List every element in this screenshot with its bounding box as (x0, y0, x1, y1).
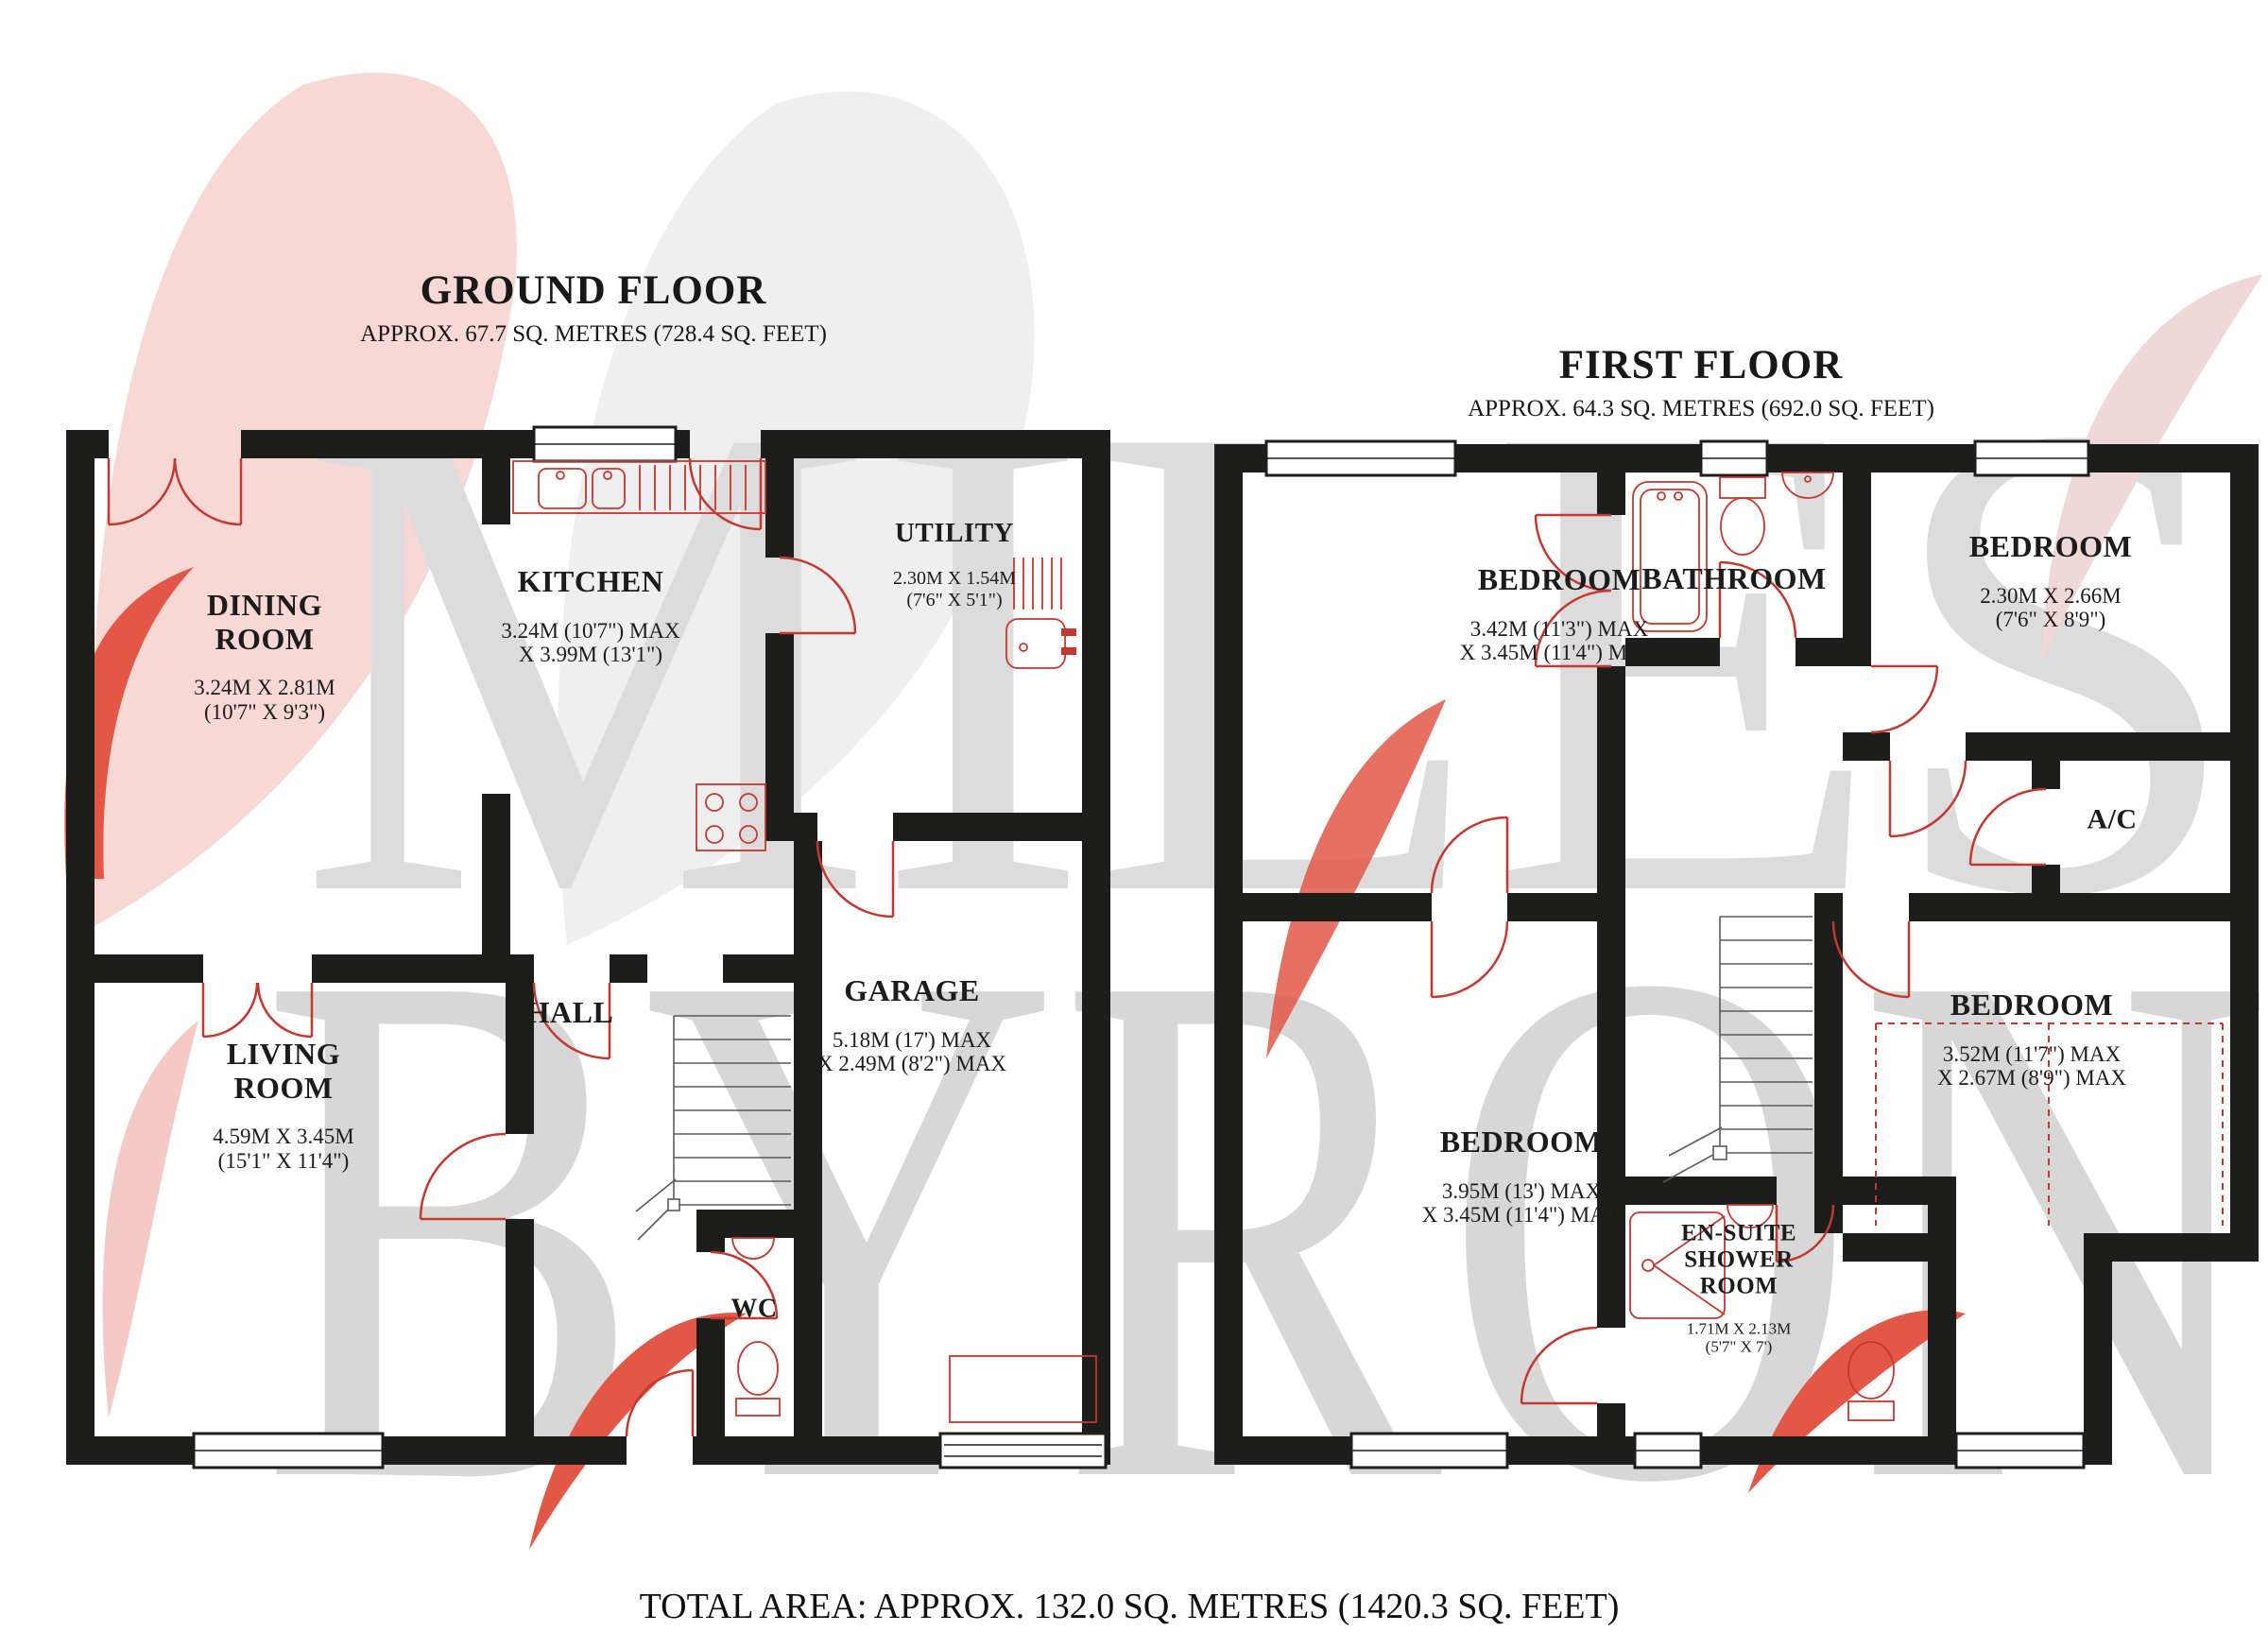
room-label-bedroom4: BEDROOM 3.95M (13') MAX X 3.45M (11'4") … (1422, 1108, 1622, 1245)
dining-room-dims: 3.24M X 2.81M (10'7" X 9'3") (194, 677, 335, 726)
dining-room-name: DINING ROOM (194, 589, 335, 657)
bedroom3-name: BEDROOM (1937, 988, 2126, 1022)
bedroom4-door (1432, 921, 1507, 997)
wc-name: WC (730, 1294, 777, 1323)
kitchen-hob (696, 784, 765, 850)
room-label-bedroom2: BEDROOM 2.30M X 2.66M (7'6" X 8'9") (1969, 513, 2132, 649)
kitchen-dims: 3.24M (10'7") MAX X 3.99M (13'1") (501, 619, 679, 668)
room-label-bathroom: BATHROOM (1641, 545, 1826, 613)
ground-stairs (636, 1016, 791, 1240)
first-floor-plan: BEDROOM 3.42M (11'3") MAX X 3.45M (11'4"… (1210, 430, 2268, 1479)
ground-floor-subtitle: APPROX. 67.7 SQ. METRES (728.4 SQ. FEET) (360, 321, 827, 348)
garage-name: GARAGE (817, 974, 1006, 1008)
first-floor-subtitle: APPROX. 64.3 SQ. METRES (692.0 SQ. FEET) (1468, 396, 1934, 422)
bedroom1-window (1266, 441, 1455, 475)
dining-french-doors (109, 458, 241, 524)
wc-basin (732, 1238, 774, 1259)
ac-cupboard-door (1970, 789, 2046, 865)
utility-name: UTILITY (893, 518, 1016, 548)
bedroom2-name: BEDROOM (1969, 530, 2132, 564)
ground-floor-plan: DINING ROOM 3.24M X 2.81M (10'7" X 9'3")… (61, 416, 1120, 1479)
bedroom2-dims: 2.30M X 2.66M (7'6" X 8'9") (1969, 584, 2132, 633)
wc-toilet (736, 1342, 780, 1416)
ensuite-toilet (1848, 1342, 1894, 1420)
bedroom1-dims: 3.42M (11'3") MAX X 3.45M (11'4") MAX (1460, 617, 1659, 666)
hall-name: HALL (526, 996, 614, 1030)
bedroom4-name: BEDROOM (1422, 1125, 1622, 1159)
landing-door (1890, 761, 1966, 836)
bedroom1-name: BEDROOM (1460, 563, 1659, 597)
room-label-ac: A/C (2087, 786, 2137, 851)
ensuite-window (1635, 1434, 1701, 1468)
room-label-wc: WC (730, 1277, 777, 1340)
room-label-bedroom3: BEDROOM 3.52M (11'7") MAX X 2.67M (8'9")… (1937, 971, 2126, 1108)
room-label-ensuite: EN-SUITE SHOWER ROOM 1.71M X 2.13M (5'7"… (1681, 1204, 1796, 1373)
ensuite-dims: 1.71M X 2.13M (5'7" X 7') (1681, 1319, 1796, 1355)
garage-dims: 5.18M (17') MAX X 2.49M (8'2") MAX (817, 1028, 1006, 1077)
room-label-hall: HALL (526, 979, 614, 1047)
first-stairs (1663, 917, 1813, 1182)
bedroom4-ensuite-door (1521, 1328, 1597, 1403)
garage-door (940, 1434, 1106, 1468)
bedroom2-window (1975, 441, 2088, 475)
bathroom-window (1701, 441, 1767, 475)
bathroom-basin (1782, 472, 1833, 498)
ground-floor-title: GROUND FLOOR (421, 267, 767, 314)
utility-dims: 2.30M X 1.54M (7'6" X 5'1") (893, 568, 1016, 610)
bedroom4-window (1351, 1434, 1507, 1468)
bedroom2-door (1871, 666, 1937, 732)
bedroom3-door (1833, 921, 1909, 997)
bedroom3-bay-window (1956, 1434, 2084, 1468)
room-label-dining: DINING ROOM 3.24M X 2.81M (10'7" X 9'3") (194, 572, 335, 742)
garage-door-swing (950, 1356, 1096, 1422)
ensuite-name: EN-SUITE SHOWER ROOM (1681, 1221, 1796, 1300)
room-label-bedroom1: BEDROOM 3.42M (11'3") MAX X 3.45M (11'4"… (1460, 546, 1659, 682)
kitchen-name: KITCHEN (501, 565, 679, 599)
room-label-kitchen: KITCHEN 3.24M (10'7") MAX X 3.99M (13'1"… (501, 548, 679, 684)
front-door (627, 1370, 693, 1436)
garage-side-door (817, 841, 893, 917)
bathroom-toilet (1720, 477, 1765, 555)
room-label-utility: UTILITY 2.30M X 1.54M (7'6" X 5'1") (893, 501, 1016, 627)
bedroom3-dims: 3.52M (11'7") MAX X 2.67M (8'9") MAX (1937, 1042, 2126, 1091)
bedroom4-dims: 3.95M (13') MAX X 3.45M (11'4") MAX (1422, 1179, 1622, 1228)
room-label-garage: GARAGE 5.18M (17') MAX X 2.49M (8'2") MA… (817, 957, 1006, 1093)
ac-name: A/C (2087, 803, 2137, 835)
living-room-name: LIVING ROOM (213, 1038, 354, 1106)
living-room-dims: 4.59M X 3.45M (15'1" X 11'4") (213, 1125, 354, 1175)
kitchen-sink (539, 469, 625, 508)
total-area-text: TOTAL AREA: APPROX. 132.0 SQ. METRES (14… (640, 1586, 1620, 1627)
utility-radiator (1014, 558, 1061, 610)
bedroom1-door (1432, 817, 1507, 893)
utility-door (780, 558, 855, 633)
first-floor-title: FIRST FLOOR (1559, 342, 1844, 388)
living-room-window (194, 1434, 383, 1468)
room-label-living: LIVING ROOM 4.59M X 3.45M (15'1" X 11'4"… (213, 1021, 354, 1191)
kitchen-window (534, 427, 676, 461)
hall-living-door (421, 1134, 506, 1219)
floorplan-page: { "page": {"background": "#ffffff"}, "wa… (0, 0, 2268, 1649)
bathroom-name: BATHROOM (1641, 562, 1826, 596)
utility-sink (1006, 619, 1076, 668)
